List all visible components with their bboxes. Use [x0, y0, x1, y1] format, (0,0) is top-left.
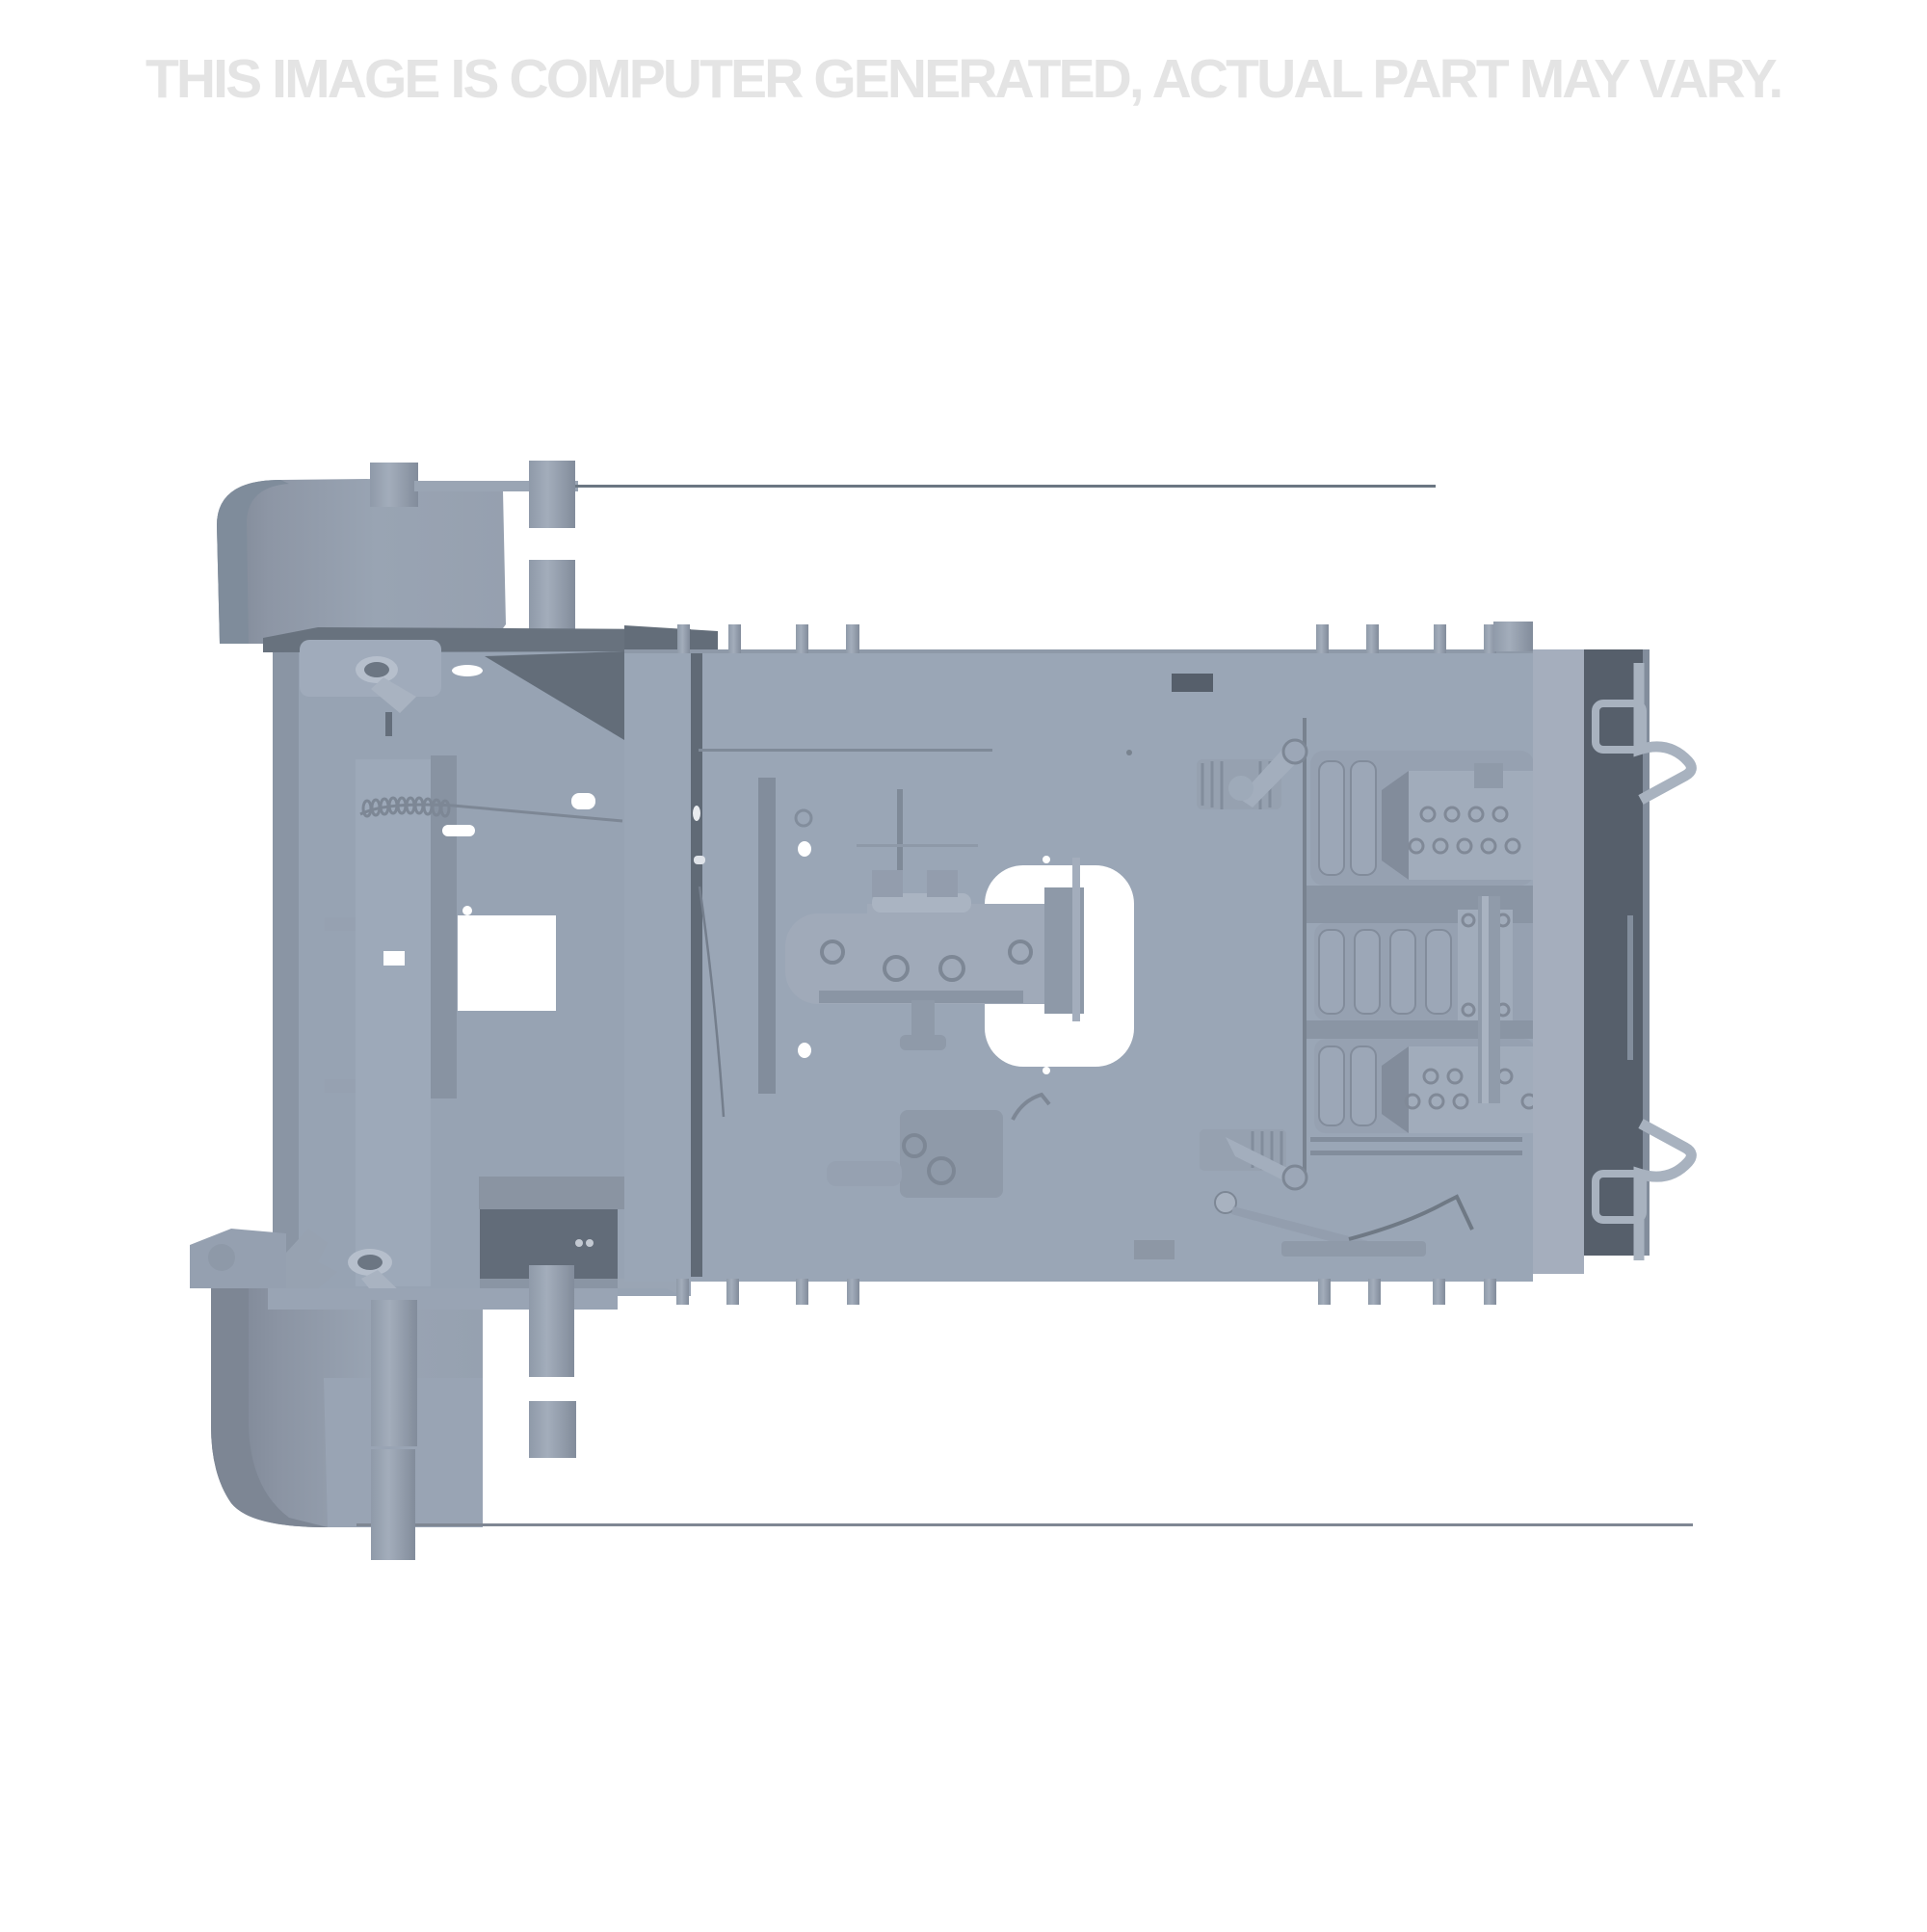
- svg-text:THIS IMAGE IS COMPUTER GENERAT: THIS IMAGE IS COMPUTER GENERATED, ACTUAL…: [145, 48, 1781, 110]
